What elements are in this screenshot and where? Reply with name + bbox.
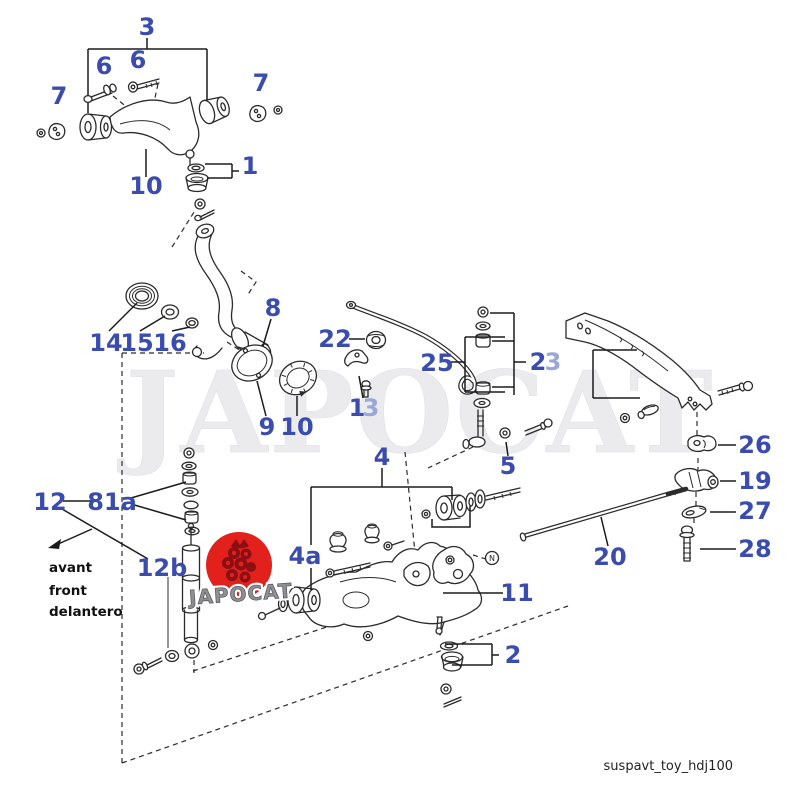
torsion-bar-20 (519, 489, 686, 542)
stabilizer-bushing-22 (367, 332, 386, 349)
label-15: 15 (120, 329, 153, 357)
lower-arm-shaft-bushing-cluster (422, 488, 520, 527)
label-4a: 4a (289, 542, 322, 570)
upper-control-arm (80, 94, 232, 165)
plate-27 (681, 504, 707, 520)
label-7a: 7 (51, 82, 68, 110)
direction-avant: avant (49, 560, 93, 576)
nut-marker-n: N (486, 552, 499, 565)
label-26: 26 (738, 431, 771, 459)
lower-ball-joint-kit-2 (436, 617, 463, 707)
parts-diagram-page: JAPOCAT (0, 0, 800, 800)
label-9: 9 (259, 413, 276, 441)
label-16: 16 (153, 329, 186, 357)
steering-knuckle (193, 222, 273, 359)
label-10-upper: 10 (129, 172, 162, 200)
direction-text: avant front delantero (49, 560, 123, 620)
label-3: 3 (139, 13, 156, 41)
nut-under-arm (364, 632, 373, 641)
logo-text: JAPOCAT (186, 578, 293, 609)
direction-delantero: delantero (49, 604, 123, 620)
label-2: 2 (505, 641, 522, 669)
diagram-filename: suspavt_toy_hdj100 (604, 759, 733, 774)
label-6b: 6 (130, 46, 147, 74)
label-22: 22 (318, 325, 351, 353)
camber-bolt-6b (129, 79, 160, 92)
label-28: 28 (738, 535, 771, 563)
label-11: 11 (500, 579, 533, 607)
suspension-exploded-diagram: JAPOCAT (0, 0, 800, 800)
bracket-1-leader (205, 164, 239, 178)
ball-joint-kit-1-parts (186, 164, 208, 192)
label-12b: 12b (137, 554, 188, 582)
label-23-faded: 3 (545, 348, 562, 376)
label-14: 14 (89, 329, 122, 357)
direction-arrow (48, 529, 92, 549)
clip-nut-7b (250, 106, 282, 122)
label-10-lower: 10 (280, 413, 313, 441)
label-13-faded: 3 (363, 394, 380, 422)
label-5: 5 (500, 452, 517, 480)
torsion-anchor-arm-19 (675, 469, 718, 491)
label-6a: 6 (96, 52, 113, 80)
direction-front: front (49, 583, 87, 599)
label-19: 19 (738, 467, 771, 495)
bump-stop-small (330, 532, 346, 552)
clamp-26 (688, 436, 716, 452)
label-27: 27 (738, 497, 771, 525)
label-25: 25 (420, 349, 453, 377)
bolt-28 (680, 526, 694, 561)
svg-text:N: N (489, 554, 495, 563)
crossmember-bolt (718, 382, 753, 396)
label-81a: 81a (87, 488, 137, 516)
bump-stop-large (365, 524, 379, 543)
camber-bolt-6a (84, 83, 117, 102)
shock-lower-hardware (134, 641, 218, 675)
label-1: 1 (242, 152, 259, 180)
label-4: 4 (374, 443, 391, 471)
leader-20 (601, 517, 608, 546)
leader-8 (263, 319, 271, 346)
label-7b: 7 (253, 69, 270, 97)
label-8: 8 (265, 294, 282, 322)
hub-seal-14 (126, 283, 158, 309)
clip-nut-7a (37, 124, 65, 140)
castle-nut-and-pin (195, 199, 214, 221)
plug-16 (186, 318, 198, 328)
label-20: 20 (593, 543, 626, 571)
label-12: 12 (33, 488, 66, 516)
small-nut-crossmember (621, 414, 630, 423)
japocat-logo: JAPOCAT JAPOCAT (186, 532, 293, 610)
leader-14 (109, 303, 137, 331)
